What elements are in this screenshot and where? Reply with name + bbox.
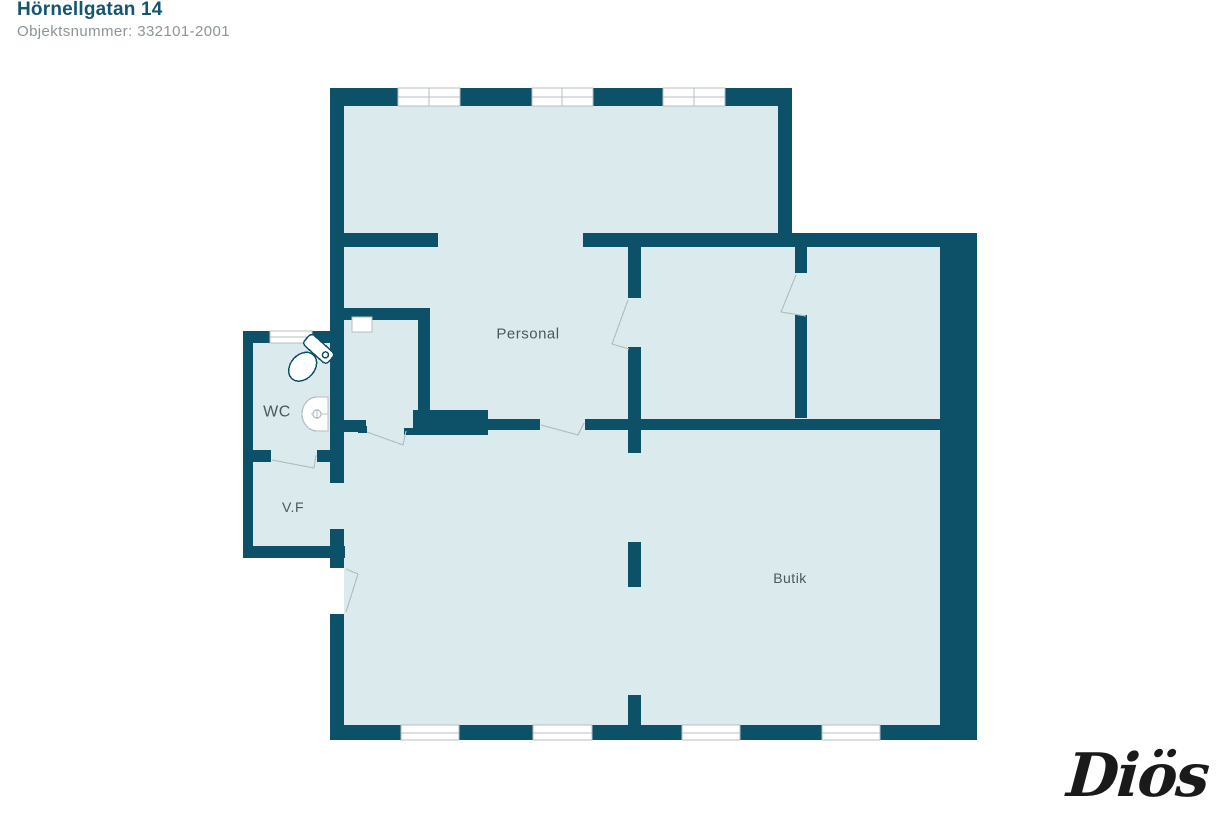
window bbox=[401, 725, 459, 740]
window bbox=[533, 725, 592, 740]
window bbox=[682, 725, 740, 740]
cabinet-icon bbox=[352, 317, 372, 332]
floor-area bbox=[243, 88, 977, 740]
sink-icon bbox=[302, 397, 328, 431]
room-label-wc: WC bbox=[263, 404, 291, 421]
window bbox=[822, 725, 880, 740]
room-label-personal: Personal bbox=[496, 326, 559, 343]
window bbox=[532, 88, 593, 106]
floorplan-page: Hörnellgatan 14 Objektsnummer: 332101-20… bbox=[0, 0, 1220, 813]
dios-logo: Diös bbox=[1065, 741, 1211, 811]
window bbox=[398, 88, 460, 106]
room-label-butik: Butik bbox=[773, 570, 807, 586]
window bbox=[663, 88, 725, 106]
entrance-opening bbox=[330, 568, 344, 614]
room-label-vf: V.F bbox=[282, 499, 304, 515]
floorplan-svg: Personal WC V.F Butik bbox=[0, 0, 1220, 813]
